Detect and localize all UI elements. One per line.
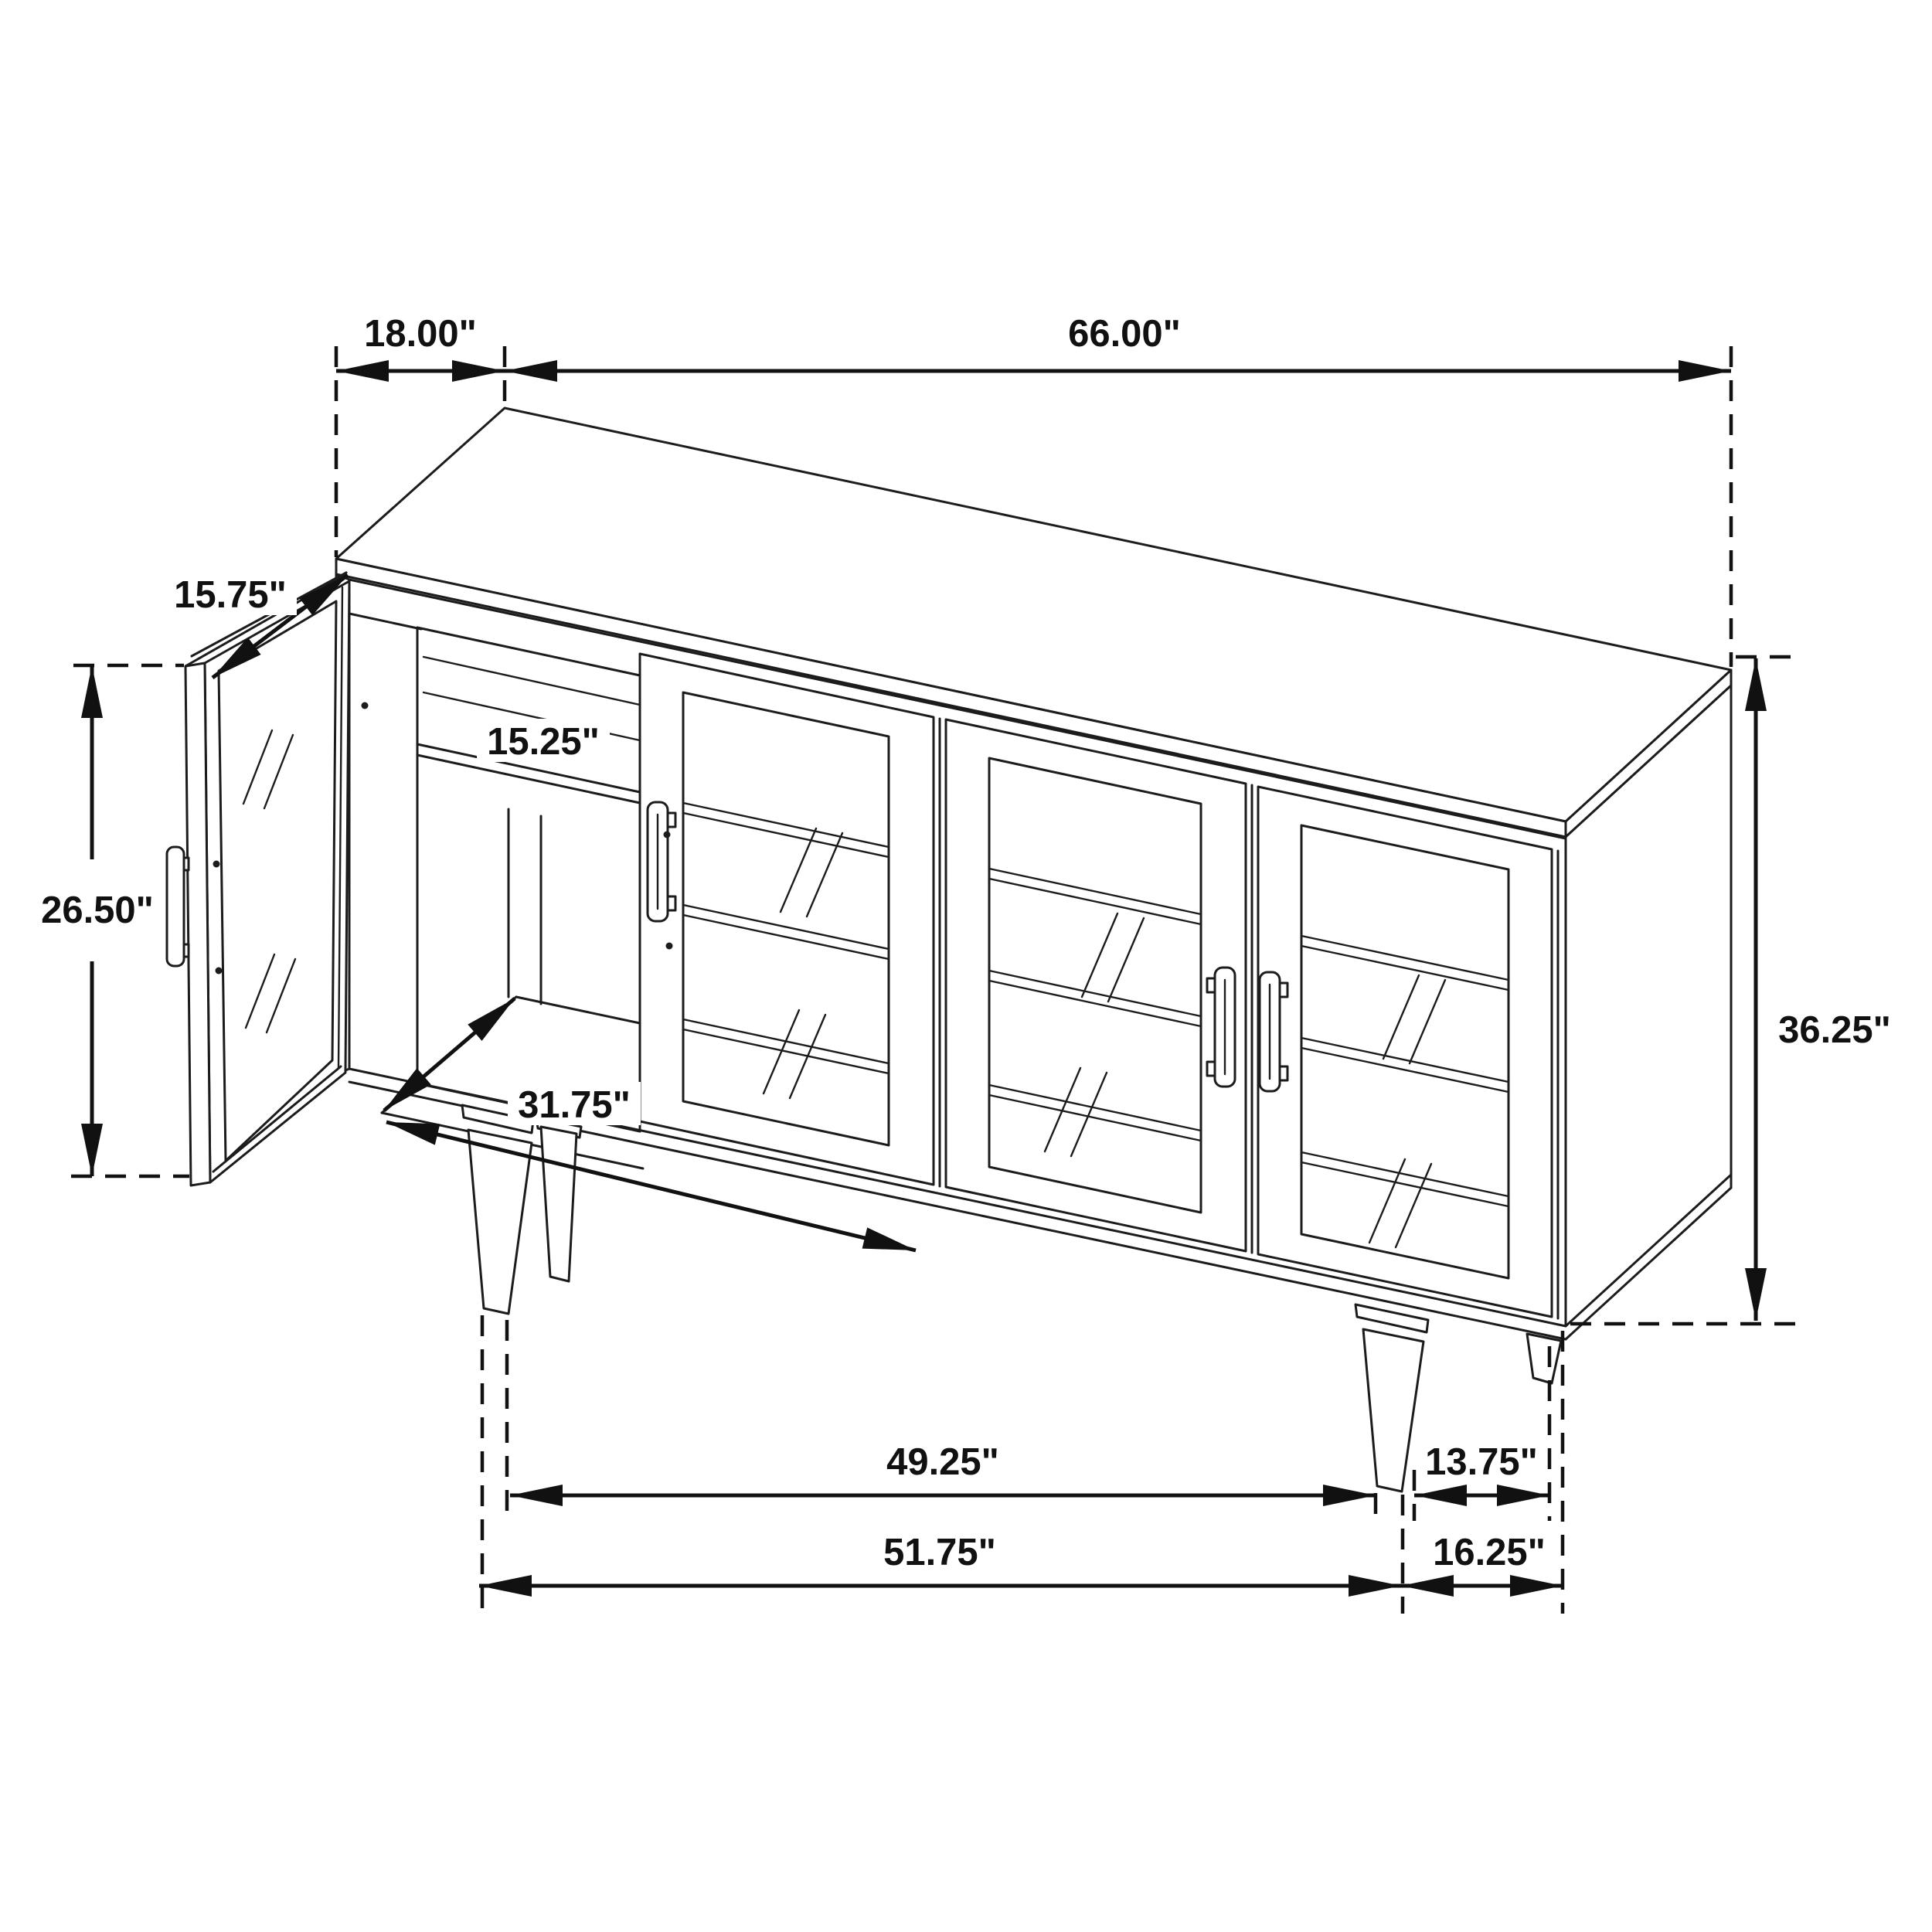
dim-label-base-depth: 16.25"	[1433, 1532, 1546, 1573]
glass-door-center-right	[946, 719, 1246, 1251]
back-right-leg	[1527, 1334, 1561, 1383]
screw-dot	[213, 861, 220, 868]
dim-label-leg-to-back: 13.75"	[1425, 1441, 1538, 1483]
glass-door-right	[1258, 787, 1552, 1317]
screw-dot	[216, 968, 223, 975]
dimension-top-depth: 18.00"	[336, 313, 505, 371]
dimension-shelf-depth: 15.25"	[477, 719, 610, 763]
front-right-leg	[1363, 1329, 1423, 1492]
glass-pane	[989, 758, 1201, 1213]
dim-label-top-depth: 18.00"	[364, 313, 477, 355]
dim-label-overall-height: 36.25"	[1778, 1009, 1891, 1051]
dim-label-shelf-depth: 15.25"	[487, 721, 600, 763]
dimension-base-depth: 16.25"	[1401, 1532, 1563, 1586]
dimension-leg-span-inner: 49.25"	[510, 1441, 1376, 1495]
back-left-leg	[541, 1127, 577, 1281]
dim-label-interior-width: 31.75"	[518, 1084, 631, 1126]
hinge-dot	[664, 832, 671, 838]
dim-label-door-height: 26.50"	[41, 889, 154, 931]
dimension-overall-height: 36.25"	[1756, 658, 1891, 1321]
dimension-door-height: 26.50"	[41, 665, 154, 1176]
front-left-leg	[468, 1130, 532, 1314]
open-glass-door	[167, 573, 369, 1185]
door-handle	[167, 847, 189, 966]
glass-door-left-center	[640, 654, 934, 1185]
glass-pane	[1301, 825, 1509, 1278]
glass-pane	[683, 692, 889, 1145]
cabinet-drawing	[167, 408, 1731, 1492]
dimension-leg-span-outer: 51.75"	[479, 1532, 1401, 1586]
dimension-overall-width: 66.00"	[505, 313, 1731, 371]
dim-label-overall-width: 66.00"	[1068, 313, 1181, 355]
dimension-leg-to-back: 13.75"	[1414, 1441, 1549, 1495]
dim-label-leg-span-inner: 49.25"	[886, 1441, 999, 1483]
dimension-diagram-page: 18.00" 66.00" 15.75" 26.50" 15.25"	[0, 0, 1932, 1932]
hinge-dot	[666, 943, 673, 950]
dim-label-door-width: 15.75"	[174, 574, 287, 616]
sideboard-dimension-diagram: 18.00" 66.00" 15.75" 26.50" 15.25"	[0, 0, 1932, 1932]
door-outer-stile	[185, 663, 210, 1185]
dim-label-leg-span-outer: 51.75"	[883, 1532, 996, 1573]
screw-dot	[362, 702, 369, 709]
